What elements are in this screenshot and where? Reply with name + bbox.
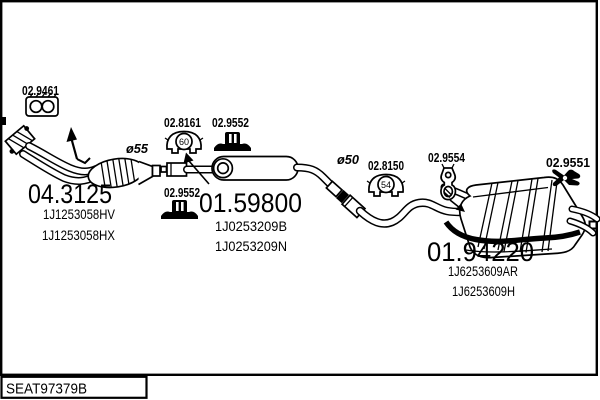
part-code-mount-rear: 02.9551 — [546, 155, 590, 170]
mid-pipe-diameter-label: ø50 — [337, 152, 360, 167]
diagram-reference-code: SEAT97379B — [6, 381, 87, 398]
footer-reference-box: SEAT97379B — [2, 377, 147, 398]
part-code-front-pipe: 04.3125 — [28, 179, 112, 209]
oem-code-mid-muffler-1: 1J0253209B — [215, 218, 287, 234]
exhaust-diagram: 60 54 02.9461 02.8161 02.9552 — [0, 0, 600, 400]
part-code-clamp-top: 02.9552 — [212, 115, 249, 130]
oem-code-mid-muffler-2: 1J0253209N — [215, 238, 287, 254]
mount-60-size-label: 60 — [179, 137, 189, 147]
oem-code-front-pipe-2: 1J1253058HX — [42, 227, 116, 243]
part-code-mount-60: 02.8161 — [164, 115, 201, 130]
part-code-clamp-bottom: 02.9552 — [164, 185, 200, 200]
exhaust-parts-diagram-page: 60 54 02.9461 02.8161 02.9552 — [0, 0, 600, 400]
part-code-hanger-rear: 02.9554 — [428, 150, 466, 165]
left-edge-marker — [0, 117, 6, 125]
front-pipe-diameter-label: ø55 — [126, 141, 149, 156]
oem-code-rear-muffler-1: 1J6253609AR — [448, 263, 518, 279]
oem-code-front-pipe-1: 1J1253058HV — [43, 206, 116, 222]
rubber-hanger-icon — [441, 164, 455, 200]
part-code-mid-muffler: 01.59800 — [199, 188, 302, 218]
mount-54-size-label: 54 — [381, 180, 391, 190]
part-code-gasket: 02.9461 — [22, 83, 59, 98]
oem-code-rear-muffler-2: 1J6253609H — [452, 283, 515, 299]
part-code-mount-54: 02.8150 — [368, 158, 404, 173]
